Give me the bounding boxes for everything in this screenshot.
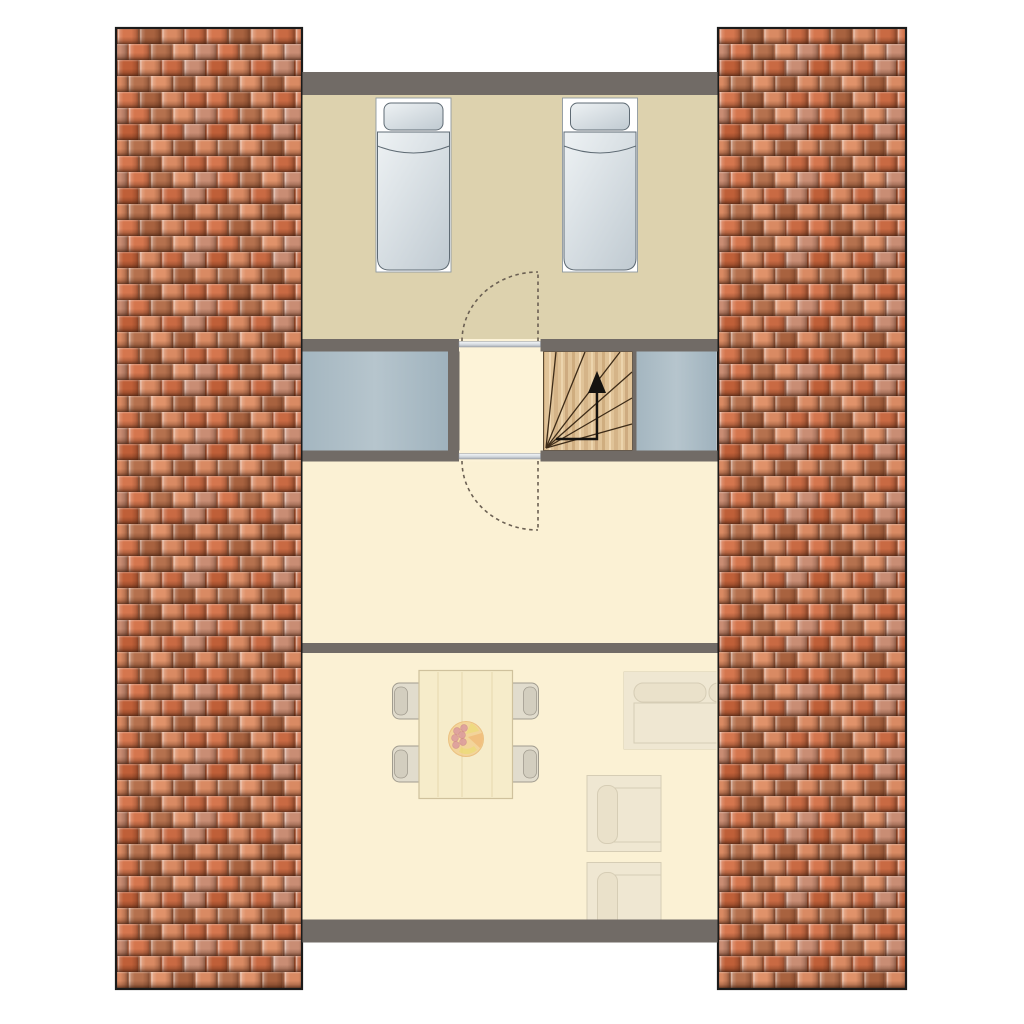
fruit-bowl [449,722,484,757]
armchair [587,776,661,852]
door-threshold [459,342,541,348]
void-panel-left [303,352,449,451]
wall-hall-living [303,643,718,653]
bed-left [376,98,451,272]
wall-bottom [303,920,718,943]
floor-plan-canvas [0,0,1024,1024]
void-panel-right [637,352,717,451]
wall-vertical-landing [448,339,460,462]
door-threshold [459,454,541,460]
bed-right [563,98,638,272]
bedroom-floor [303,95,718,339]
wall-stair-divider [633,352,637,451]
landing-floor [460,352,544,451]
hall-floor [303,462,718,644]
roof-tiles-right [718,28,906,989]
floor-plan-page [0,0,1024,1024]
roof-tiles-left [116,28,302,989]
wall-top [303,72,718,95]
stairs [544,352,633,451]
